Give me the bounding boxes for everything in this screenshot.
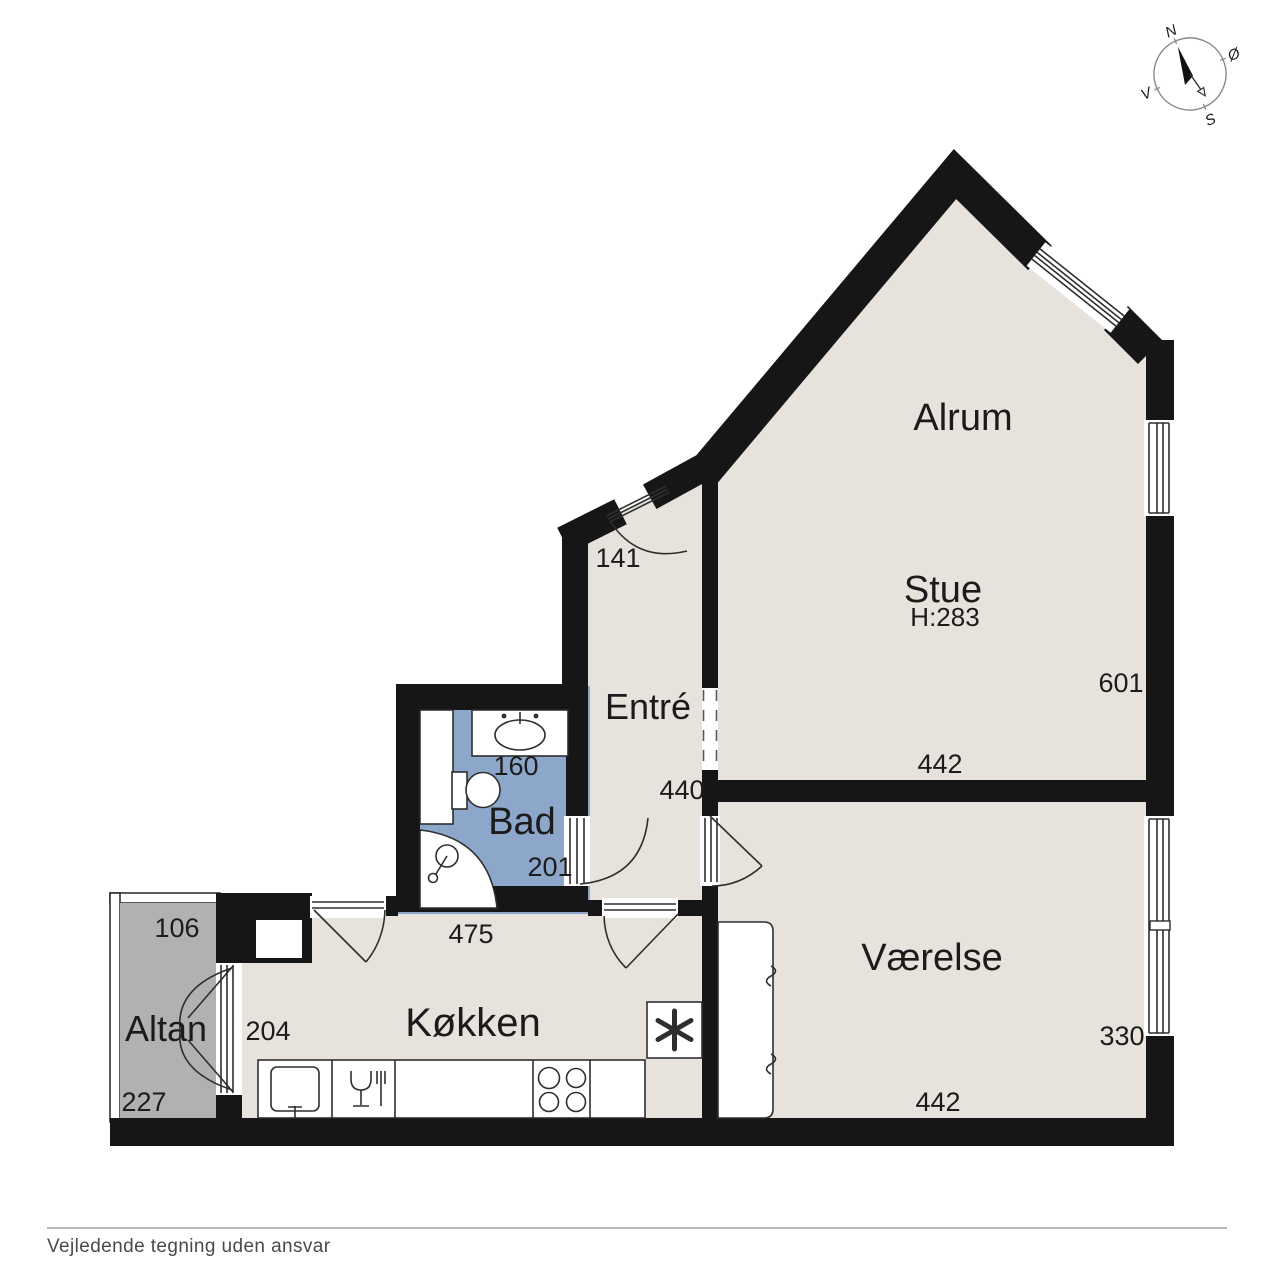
dim-stue-right: 601 bbox=[1098, 668, 1143, 698]
dim-koekken-left: 204 bbox=[245, 1016, 290, 1046]
compass-rose: N Ø S V bbox=[1119, 1, 1264, 149]
bath-right-wall-lower bbox=[566, 884, 588, 912]
compass-north: N bbox=[1163, 21, 1180, 41]
compass-west: V bbox=[1138, 83, 1156, 103]
dim-vaerelse-bottom: 442 bbox=[915, 1087, 960, 1117]
footer-divider bbox=[47, 1227, 1227, 1229]
label-koekken: Køkken bbox=[405, 1001, 541, 1045]
refrigerator bbox=[647, 1002, 702, 1058]
entre-koekken-wall-right bbox=[678, 900, 706, 916]
entre-koekken-wall-left bbox=[588, 900, 602, 916]
dim-altan-top: 106 bbox=[154, 913, 199, 943]
compass-south: S bbox=[1203, 110, 1219, 130]
dim-bad-bottom: 201 bbox=[527, 852, 572, 882]
koekken-vaerelse-wall bbox=[702, 884, 718, 1122]
kitchen-counter bbox=[258, 1060, 645, 1118]
bath-vanity bbox=[472, 710, 568, 756]
label-stue-height: H:283 bbox=[910, 602, 979, 632]
balcony-wall-lower-block bbox=[216, 1095, 242, 1122]
entre-left-wall bbox=[562, 526, 588, 702]
bath-cabinet bbox=[420, 710, 453, 824]
right-wall-upper bbox=[1146, 340, 1174, 422]
main-floor bbox=[224, 172, 1160, 1133]
dim-koekken-top: 475 bbox=[448, 919, 493, 949]
floor-plan-drawing: N Ø S V Alrum Stue H:283 Entré Bad Køkke… bbox=[0, 0, 1280, 1280]
dim-entre-entrance: 141 bbox=[595, 543, 640, 573]
floor-plan-page: N Ø S V Alrum Stue H:283 Entré Bad Køkke… bbox=[0, 0, 1280, 1280]
label-altan: Altan bbox=[125, 1008, 207, 1049]
stue-vaerelse-wall bbox=[702, 780, 1146, 802]
label-alrum: Alrum bbox=[913, 397, 1012, 439]
entre-stue-wall bbox=[702, 456, 718, 688]
dim-vaerelse-right: 330 bbox=[1099, 1021, 1144, 1051]
compass-needle bbox=[1170, 46, 1196, 85]
dim-entre-length: 440 bbox=[659, 775, 704, 805]
compass-east: Ø bbox=[1224, 44, 1244, 65]
label-entre: Entré bbox=[605, 686, 691, 727]
balcony-rail-left bbox=[110, 893, 120, 1122]
bath-right-wall-upper bbox=[566, 684, 588, 818]
dim-bad-top: 160 bbox=[493, 751, 538, 781]
kitchen-door-jamb bbox=[386, 896, 398, 916]
bottom-wall bbox=[110, 1118, 1174, 1146]
right-wall-middle bbox=[1146, 516, 1174, 816]
right-wall-lower bbox=[1146, 1036, 1174, 1122]
stue-window bbox=[1144, 420, 1176, 516]
dim-altan-bottom: 227 bbox=[121, 1087, 166, 1117]
label-vaerelse: Værelse bbox=[861, 937, 1003, 979]
dim-stue-bottom: 442 bbox=[917, 749, 962, 779]
label-bad: Bad bbox=[488, 801, 556, 843]
balcony-rail-top bbox=[110, 893, 220, 903]
floors bbox=[110, 172, 1160, 1133]
footer-disclaimer: Vejledende tegning uden ansvar bbox=[47, 1236, 331, 1258]
roof-wall-right-corner bbox=[1116, 318, 1150, 352]
entre-stue-open-passage bbox=[702, 688, 718, 770]
duct-shaft bbox=[255, 919, 303, 959]
bath-left-wall bbox=[396, 684, 420, 912]
wardrobe bbox=[718, 922, 776, 1118]
vaerelse-window bbox=[1144, 816, 1176, 1036]
bath-top-wall bbox=[396, 684, 588, 710]
